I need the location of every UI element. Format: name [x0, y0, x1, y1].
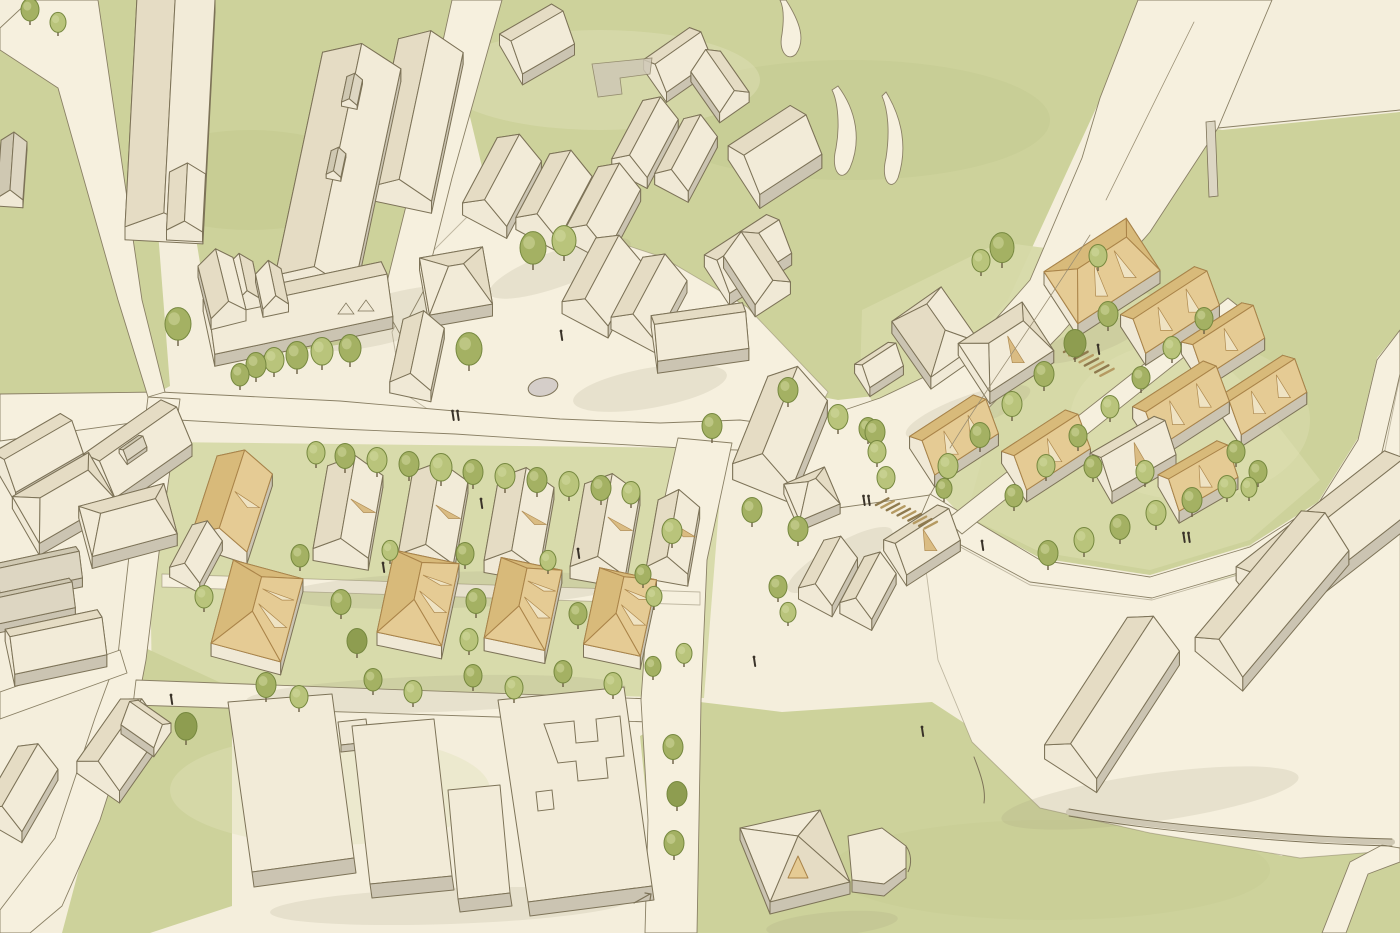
- school-block-2: [352, 719, 454, 898]
- tree-highlight: [459, 337, 471, 350]
- tree-canopy: [662, 519, 682, 544]
- tree-highlight: [1243, 480, 1250, 488]
- tree-highlight: [974, 253, 982, 262]
- tree-canopy: [635, 564, 651, 584]
- tree-canopy: [291, 544, 309, 567]
- tree-highlight: [292, 689, 300, 698]
- tree-highlight: [197, 589, 205, 598]
- tree-canopy: [165, 308, 191, 341]
- tree-canopy: [1241, 477, 1257, 497]
- tree-canopy: [1037, 454, 1055, 477]
- tree-canopy: [1069, 424, 1087, 447]
- tree-highlight: [384, 543, 391, 551]
- tree-highlight: [1039, 458, 1047, 467]
- tree-canopy: [1136, 460, 1154, 483]
- pedestrian-body: [922, 728, 923, 736]
- tree-highlight: [406, 684, 414, 693]
- tree-highlight: [745, 501, 754, 511]
- tree-canopy: [552, 226, 576, 256]
- tree-canopy: [456, 542, 474, 565]
- tree-canopy: [1182, 488, 1202, 513]
- tree-canopy: [591, 476, 611, 501]
- tree-canopy: [990, 233, 1014, 263]
- tree-highlight: [678, 646, 685, 654]
- tree-canopy: [50, 12, 66, 32]
- tree-highlight: [562, 475, 571, 485]
- tree: [264, 348, 284, 378]
- tree-canopy: [1110, 515, 1130, 540]
- tree-canopy: [456, 333, 482, 366]
- building-face: [228, 694, 354, 872]
- tree-highlight: [466, 668, 474, 677]
- tree-highlight: [1134, 370, 1142, 379]
- tree: [165, 308, 191, 346]
- pedestrian-body: [561, 332, 562, 340]
- tree: [769, 575, 787, 602]
- tree-highlight: [458, 546, 466, 555]
- pedestrian-body: [1184, 534, 1185, 542]
- tree-canopy: [646, 586, 662, 606]
- tree-highlight: [1086, 459, 1094, 468]
- tree-canopy: [936, 478, 952, 498]
- tree-highlight: [259, 676, 268, 686]
- tree-highlight: [462, 632, 470, 641]
- tree-canopy: [604, 672, 622, 695]
- tree: [788, 517, 808, 547]
- tree-highlight: [309, 445, 317, 454]
- tree-highlight: [594, 479, 603, 489]
- tree-highlight: [879, 470, 887, 479]
- building-face: [352, 719, 452, 884]
- tree-highlight: [530, 471, 539, 481]
- tree-canopy: [664, 831, 684, 856]
- tree-canopy: [676, 643, 692, 663]
- tree-highlight: [1229, 444, 1237, 453]
- tree-highlight: [370, 451, 379, 461]
- tree-canopy: [399, 452, 419, 477]
- tree-canopy: [175, 713, 197, 741]
- tree-canopy: [335, 444, 355, 469]
- building-face: [12, 497, 40, 544]
- tree-canopy: [622, 481, 640, 504]
- building: [420, 247, 493, 327]
- school-block-3: [448, 785, 512, 912]
- tree-canopy: [780, 602, 796, 622]
- tree-canopy: [520, 232, 546, 265]
- tree-highlight: [781, 381, 790, 391]
- tree-canopy: [1034, 362, 1054, 387]
- tree-highlight: [1197, 311, 1205, 320]
- building: [651, 303, 749, 373]
- tree-canopy: [1084, 455, 1102, 478]
- tree-highlight: [249, 356, 258, 366]
- tree-highlight: [267, 351, 276, 361]
- tree-canopy: [347, 629, 367, 654]
- tree-canopy: [404, 680, 422, 703]
- tree-canopy: [430, 454, 452, 482]
- tree-canopy: [495, 464, 515, 489]
- tree-canopy: [667, 782, 687, 807]
- tree-highlight: [624, 485, 632, 494]
- tree-highlight: [771, 579, 779, 588]
- tree-highlight: [705, 417, 714, 427]
- tree-highlight: [498, 467, 507, 477]
- tree: [742, 498, 762, 528]
- tree-highlight: [366, 672, 374, 681]
- tree-highlight: [782, 605, 789, 613]
- tree-canopy: [970, 423, 990, 448]
- tree-canopy: [645, 656, 661, 676]
- tree-canopy: [778, 378, 798, 403]
- pedestrian-body: [171, 696, 172, 704]
- tree-canopy: [1074, 528, 1094, 553]
- tree-highlight: [334, 593, 343, 603]
- tree-canopy: [788, 517, 808, 542]
- tree-canopy: [311, 338, 333, 366]
- tree-canopy: [1005, 484, 1023, 507]
- tree: [231, 363, 249, 390]
- building: [0, 132, 27, 208]
- tree-highlight: [941, 457, 950, 467]
- tree-highlight: [1103, 399, 1111, 408]
- building-face: [448, 785, 510, 899]
- tree-canopy: [1002, 392, 1022, 417]
- tree: [286, 342, 308, 374]
- tree-canopy: [466, 589, 486, 614]
- tree-canopy: [1101, 395, 1119, 418]
- tree-highlight: [637, 567, 644, 575]
- tree-canopy: [1195, 307, 1213, 330]
- tree-canopy: [1064, 330, 1086, 358]
- pedestrian-body: [1189, 534, 1190, 542]
- tree: [780, 602, 796, 626]
- tree-canopy: [1227, 440, 1245, 463]
- tree-canopy: [1089, 244, 1107, 267]
- pedestrian-body: [458, 412, 459, 420]
- tree-highlight: [665, 522, 674, 532]
- tree-highlight: [523, 236, 535, 249]
- tree-canopy: [1163, 336, 1181, 359]
- tree-highlight: [289, 345, 299, 356]
- tree-highlight: [466, 463, 475, 473]
- tree-canopy: [364, 668, 382, 691]
- tree-highlight: [507, 680, 515, 689]
- pedestrian-body: [383, 564, 384, 572]
- masterplan-watercolor-svg: [0, 0, 1400, 933]
- tree-canopy: [559, 472, 579, 497]
- tree-canopy: [663, 735, 683, 760]
- tree-highlight: [938, 481, 945, 489]
- tree-highlight: [993, 237, 1004, 249]
- building-face: [185, 163, 206, 232]
- pedestrian-body: [578, 550, 579, 558]
- tree-highlight: [1138, 464, 1146, 473]
- tree-highlight: [1037, 365, 1046, 375]
- tree-canopy: [554, 660, 572, 683]
- tree-canopy: [877, 466, 895, 489]
- tree-canopy: [195, 585, 213, 608]
- tree-highlight: [606, 676, 614, 685]
- building-face: [498, 687, 652, 902]
- tree-canopy: [769, 575, 787, 598]
- tree-highlight: [233, 367, 241, 376]
- tree-highlight: [1220, 479, 1228, 488]
- tree-highlight: [402, 455, 411, 465]
- pedestrian-body: [481, 500, 482, 508]
- tree-highlight: [1071, 428, 1079, 437]
- tree-highlight: [542, 553, 549, 561]
- tree-highlight: [1149, 504, 1158, 514]
- tree-canopy: [256, 673, 276, 698]
- tree-canopy: [382, 540, 398, 560]
- tree-highlight: [868, 423, 877, 433]
- tree-highlight: [1005, 395, 1014, 405]
- tree-canopy: [742, 498, 762, 523]
- tree-canopy: [231, 363, 249, 386]
- tree-canopy: [868, 440, 886, 463]
- tree-highlight: [168, 312, 180, 325]
- tree-highlight: [293, 548, 301, 557]
- tree-highlight: [666, 738, 675, 748]
- tree-highlight: [667, 834, 676, 844]
- tree-highlight: [1185, 491, 1194, 501]
- tree-highlight: [342, 338, 352, 349]
- tree-highlight: [23, 2, 31, 11]
- tree-canopy: [463, 460, 483, 485]
- tree-canopy: [569, 602, 587, 625]
- building: [0, 744, 58, 843]
- tree-highlight: [1251, 464, 1259, 473]
- tree-highlight: [555, 230, 566, 242]
- tree-highlight: [556, 664, 564, 673]
- pedestrian-body: [869, 497, 870, 505]
- tree-highlight: [433, 457, 443, 468]
- tree-canopy: [290, 685, 308, 708]
- tree-canopy: [331, 590, 351, 615]
- pedestrian: [753, 656, 756, 666]
- tree-canopy: [527, 468, 547, 493]
- pedestrian-body: [982, 542, 983, 550]
- tree-canopy: [505, 676, 523, 699]
- tree-canopy: [702, 414, 722, 439]
- tree-highlight: [647, 659, 654, 667]
- tree-canopy: [264, 348, 284, 373]
- tree-canopy: [460, 628, 478, 651]
- tree-canopy: [1132, 366, 1150, 389]
- masterplan-illustration: [0, 0, 1400, 933]
- tree-highlight: [338, 447, 347, 457]
- tree-canopy: [1038, 541, 1058, 566]
- tree-canopy: [1218, 475, 1236, 498]
- tree-highlight: [1165, 340, 1173, 349]
- tree-highlight: [571, 606, 579, 615]
- tree: [339, 335, 361, 367]
- tree-highlight: [973, 426, 982, 436]
- tree-highlight: [1041, 544, 1050, 554]
- tree-highlight: [1077, 531, 1086, 541]
- building: [167, 163, 206, 242]
- tree-canopy: [1098, 302, 1118, 327]
- tree-highlight: [791, 520, 800, 530]
- pedestrian-body: [754, 658, 755, 666]
- tree: [311, 338, 333, 370]
- tree-canopy: [1146, 501, 1166, 526]
- tree-canopy: [828, 405, 848, 430]
- tree-canopy: [367, 448, 387, 473]
- tree-canopy: [938, 454, 958, 479]
- tree-highlight: [1113, 518, 1122, 528]
- tree-canopy: [307, 441, 325, 464]
- tree-highlight: [831, 408, 840, 418]
- tree-highlight: [1091, 248, 1099, 257]
- tree-canopy: [464, 664, 482, 687]
- tree-canopy: [286, 342, 308, 370]
- tree-highlight: [314, 341, 324, 352]
- tree-canopy: [972, 249, 990, 272]
- tree-canopy: [339, 335, 361, 363]
- pedestrian-body: [1098, 346, 1099, 354]
- tree-highlight: [1007, 488, 1015, 497]
- pedestrian-body: [453, 412, 454, 420]
- tree-highlight: [1101, 305, 1110, 315]
- tree-highlight: [870, 444, 878, 453]
- tree-highlight: [469, 592, 478, 602]
- tree-canopy: [540, 550, 556, 570]
- tree-highlight: [52, 15, 59, 23]
- tree-highlight: [648, 589, 655, 597]
- pedestrian-body: [864, 497, 865, 505]
